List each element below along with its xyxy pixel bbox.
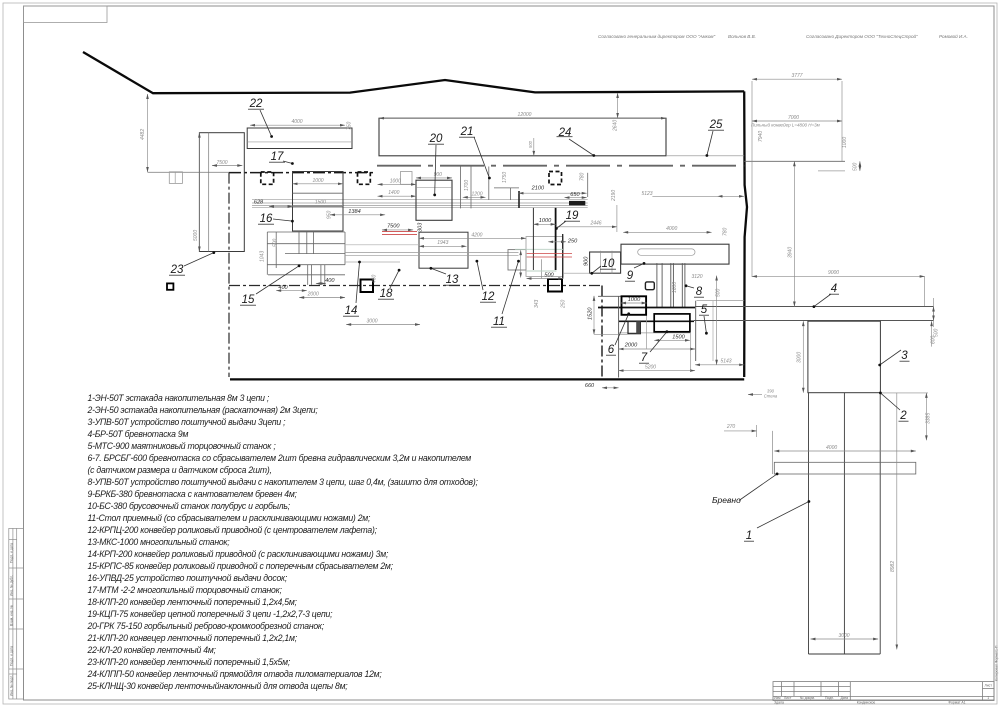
svg-text:11-Стол приемный (со сбрасыват: 11-Стол приемный (со сбрасывателем и рас… — [88, 513, 371, 523]
svg-text:23: 23 — [170, 264, 184, 276]
svg-text:650: 650 — [570, 192, 580, 198]
svg-text:Вольнов В.В.: Вольнов В.В. — [728, 34, 756, 39]
svg-text:12000: 12000 — [518, 112, 532, 118]
svg-text:7500: 7500 — [387, 223, 400, 229]
svg-text:5000: 5000 — [193, 230, 199, 241]
svg-text:6-7. БРСБГ-600 бревнотаска со: 6-7. БРСБГ-600 бревнотаска со сбрасывате… — [88, 453, 472, 463]
svg-text:900: 900 — [584, 256, 590, 266]
svg-text:15: 15 — [242, 294, 255, 306]
svg-text:Здала: Здала — [774, 701, 784, 705]
svg-text:9-БРКБ-380 бревнотаска с канто: 9-БРКБ-380 бревнотаска с кантователем бр… — [88, 489, 298, 499]
svg-text:3000: 3000 — [797, 352, 803, 363]
svg-text:Инв. № подл.: Инв. № подл. — [9, 675, 13, 696]
svg-text:4200: 4200 — [471, 232, 482, 238]
svg-text:3000: 3000 — [366, 318, 377, 324]
svg-text:3385: 3385 — [926, 413, 932, 424]
svg-text:3000: 3000 — [838, 633, 849, 639]
svg-text:4000: 4000 — [666, 226, 677, 232]
svg-text:12-КРПЦ-200 конвейер роликовый: 12-КРПЦ-200 конвейер роликовый приводной… — [88, 525, 378, 535]
svg-text:Стена: Стена — [764, 394, 778, 399]
svg-text:7940: 7940 — [758, 131, 764, 142]
svg-text:17: 17 — [271, 151, 284, 163]
svg-text:400: 400 — [278, 285, 288, 291]
svg-text:2190: 2190 — [611, 190, 617, 202]
svg-text:18-КЛП-20 конвейер ленточный п: 18-КЛП-20 конвейер ленточный поперечный … — [88, 597, 298, 607]
svg-text:2000: 2000 — [307, 291, 319, 297]
svg-text:1-ЭН-50Т эстакада накопительна: 1-ЭН-50Т эстакада накопительная 8м 3 цеп… — [88, 393, 270, 403]
svg-text:1: 1 — [746, 530, 752, 542]
svg-text:1: 1 — [987, 696, 989, 700]
svg-text:780: 780 — [723, 227, 729, 236]
svg-text:5143: 5143 — [720, 359, 731, 365]
svg-text:4482: 4482 — [140, 129, 146, 140]
svg-text:19: 19 — [566, 210, 579, 222]
svg-text:1000: 1000 — [842, 137, 848, 148]
svg-text:7000: 7000 — [788, 115, 799, 121]
svg-text:Формат А1: Формат А1 — [948, 701, 965, 705]
svg-text:4000: 4000 — [826, 445, 837, 451]
svg-text:21-КЛП-20 конвецер ленточный п: 21-КЛП-20 конвецер ленточный поперечный … — [87, 633, 298, 643]
svg-text:1200: 1200 — [471, 192, 482, 198]
svg-text:8982: 8982 — [890, 561, 896, 572]
svg-text:10-БС-380 брусовочный станок п: 10-БС-380 брусовочный станок полубрус и … — [88, 501, 291, 511]
svg-text:1400: 1400 — [388, 190, 399, 196]
svg-text:Подп.: Подп. — [825, 696, 834, 700]
svg-text:500: 500 — [853, 162, 859, 171]
svg-text:20: 20 — [429, 133, 443, 145]
svg-text:8: 8 — [696, 286, 703, 298]
svg-text:Лист: Лист — [985, 684, 993, 688]
svg-text:6: 6 — [608, 344, 615, 356]
svg-text:1600: 1600 — [672, 282, 678, 293]
svg-text:460: 460 — [372, 274, 378, 283]
svg-text:1750: 1750 — [502, 172, 508, 183]
svg-text:5123: 5123 — [641, 191, 652, 197]
svg-text:18: 18 — [380, 288, 393, 300]
svg-text:11: 11 — [493, 316, 505, 328]
svg-text:500: 500 — [715, 288, 721, 297]
svg-text:500: 500 — [544, 273, 554, 279]
svg-text:16: 16 — [260, 213, 273, 225]
svg-text:400: 400 — [325, 278, 335, 284]
svg-text:13-МКС-1000 многопильный стано: 13-МКС-1000 многопильный станок; — [88, 537, 231, 547]
svg-text:10: 10 — [602, 258, 615, 270]
svg-text:2-ЭН-50 эстакада накопительная: 2-ЭН-50 эстакада накопительная (раскаточ… — [87, 405, 319, 415]
svg-text:660: 660 — [585, 383, 595, 389]
svg-text:950: 950 — [327, 210, 333, 219]
svg-text:2640: 2640 — [613, 120, 619, 132]
svg-text:Копировал Формат1-П: Копировал Формат1-П — [995, 645, 999, 681]
svg-text:1043: 1043 — [259, 251, 265, 262]
svg-text:19-КЦП-75 конвейер цепной попе: 19-КЦП-75 конвейер цепной поперечный 3 ц… — [88, 609, 334, 619]
svg-text:750: 750 — [347, 121, 353, 130]
svg-text:12: 12 — [482, 291, 495, 303]
svg-text:5200: 5200 — [645, 365, 656, 371]
svg-text:25-КЛНЩ-30 конвейер ленточныйн: 25-КЛНЩ-30 конвейер ленточныйнаклонный д… — [87, 681, 349, 691]
svg-text:14: 14 — [345, 305, 358, 317]
svg-text:Пильный конвейер L=4800 Н=3м: Пильный конвейер L=4800 Н=3м — [751, 122, 820, 128]
svg-text:250: 250 — [561, 299, 567, 309]
svg-text:303: 303 — [418, 222, 424, 232]
svg-text:7500: 7500 — [216, 160, 227, 166]
svg-text:24: 24 — [558, 127, 572, 139]
svg-text:Подп. и дата: Подп. и дата — [9, 543, 13, 563]
svg-text:3940: 3940 — [788, 247, 794, 258]
svg-text:1700: 1700 — [464, 180, 470, 191]
svg-text:Изм: Изм — [774, 696, 781, 700]
svg-text:1520: 1520 — [588, 307, 594, 320]
svg-text:Кондинское: Кондинское — [857, 701, 876, 705]
svg-text:3777: 3777 — [791, 73, 802, 79]
svg-text:4: 4 — [831, 283, 837, 295]
svg-text:1000: 1000 — [628, 297, 641, 303]
svg-text:2100: 2100 — [531, 185, 545, 191]
svg-text:1500: 1500 — [672, 335, 685, 341]
svg-text:Бревно: Бревно — [712, 495, 741, 505]
svg-text:5: 5 — [701, 304, 708, 316]
svg-text:Согласовано Директором ООО "Те: Согласовано Директором ООО "ТехноСпецСтр… — [806, 33, 918, 39]
svg-text:500: 500 — [273, 238, 279, 247]
svg-text:1000: 1000 — [312, 178, 323, 184]
svg-text:23-КЛП-20 конвейер ленточный п: 23-КЛП-20 конвейер ленточный поперечный … — [87, 657, 291, 667]
svg-text:21: 21 — [460, 126, 474, 138]
svg-text:3120: 3120 — [691, 274, 702, 280]
svg-text:3: 3 — [901, 350, 908, 362]
svg-text:22: 22 — [249, 98, 263, 110]
svg-text:600: 600 — [931, 335, 937, 344]
svg-text:9: 9 — [627, 270, 634, 282]
svg-text:9000: 9000 — [828, 270, 839, 276]
svg-text:250: 250 — [567, 239, 578, 245]
svg-text:343: 343 — [534, 299, 540, 308]
svg-text:500: 500 — [528, 140, 533, 148]
svg-text:628: 628 — [254, 200, 264, 206]
svg-text:8-УПВ-50Т устройство поштучной: 8-УПВ-50Т устройство поштучной выдачи с … — [88, 477, 479, 487]
svg-text:№ докум.: № докум. — [800, 696, 815, 700]
svg-text:17-МТМ -2-2 многопильный торцо: 17-МТМ -2-2 многопильный торцовочный ста… — [88, 585, 283, 595]
svg-text:1384: 1384 — [348, 209, 360, 215]
svg-text:Дата: Дата — [841, 696, 849, 700]
svg-text:Согласовано генеральным директ: Согласовано генеральным директором ООО "… — [598, 34, 716, 39]
svg-text:1000: 1000 — [539, 218, 552, 224]
svg-text:15-КРПС-85 конвейер роликовый: 15-КРПС-85 конвейер роликовый приводной … — [88, 561, 394, 571]
svg-text:16-УПВД-25 устройство поштучно: 16-УПВД-25 устройство поштучной выдачи д… — [88, 573, 288, 583]
svg-text:2446: 2446 — [589, 221, 601, 227]
svg-text:22-КЛ-20 конвйер ленточный 4м;: 22-КЛ-20 конвйер ленточный 4м; — [87, 645, 217, 655]
svg-text:Подп. и дата: Подп. и дата — [9, 646, 13, 666]
svg-text:(с датчиком размера и датчиком: (с датчиком размера и датчиком сброса 2ш… — [88, 465, 272, 475]
svg-text:20-ГРК 75-150 горбыльный ребро: 20-ГРК 75-150 горбыльный реброво-кромкоо… — [87, 621, 325, 631]
svg-text:780: 780 — [579, 172, 585, 181]
svg-text:1943: 1943 — [437, 240, 448, 246]
svg-text:13: 13 — [446, 274, 459, 286]
svg-text:1000: 1000 — [390, 178, 401, 184]
svg-text:2: 2 — [899, 410, 907, 422]
svg-text:4-БР-50Т бревнотаска 9м: 4-БР-50Т бревнотаска 9м — [88, 429, 189, 439]
svg-text:7: 7 — [641, 352, 648, 364]
svg-text:Инв. № дубл.: Инв. № дубл. — [9, 575, 13, 596]
svg-text:24-КЛПП-50 конвейер ленточный: 24-КЛПП-50 конвейер ленточный прямойдля … — [87, 669, 383, 679]
svg-text:4000: 4000 — [291, 119, 302, 125]
svg-text:3-УПВ-50Т устройство поштучной: 3-УПВ-50Т устройство поштучной выдачи 3ц… — [88, 417, 287, 427]
svg-text:Ромовой И.А.: Ромовой И.А. — [939, 33, 968, 39]
svg-text:Взам. инв. №: Взам. инв. № — [9, 605, 13, 626]
svg-text:5-МТС-900 маятниковый торцовоч: 5-МТС-900 маятниковый торцовочный станок… — [88, 441, 277, 451]
svg-text:14-КРП-200 конвейер роликовый: 14-КРП-200 конвейер роликовый приводной … — [88, 549, 389, 559]
svg-text:Лист: Лист — [784, 696, 792, 700]
svg-text:270: 270 — [726, 424, 736, 430]
svg-text:2000: 2000 — [624, 343, 638, 349]
svg-text:25: 25 — [709, 119, 723, 131]
svg-text:1500: 1500 — [315, 199, 326, 205]
